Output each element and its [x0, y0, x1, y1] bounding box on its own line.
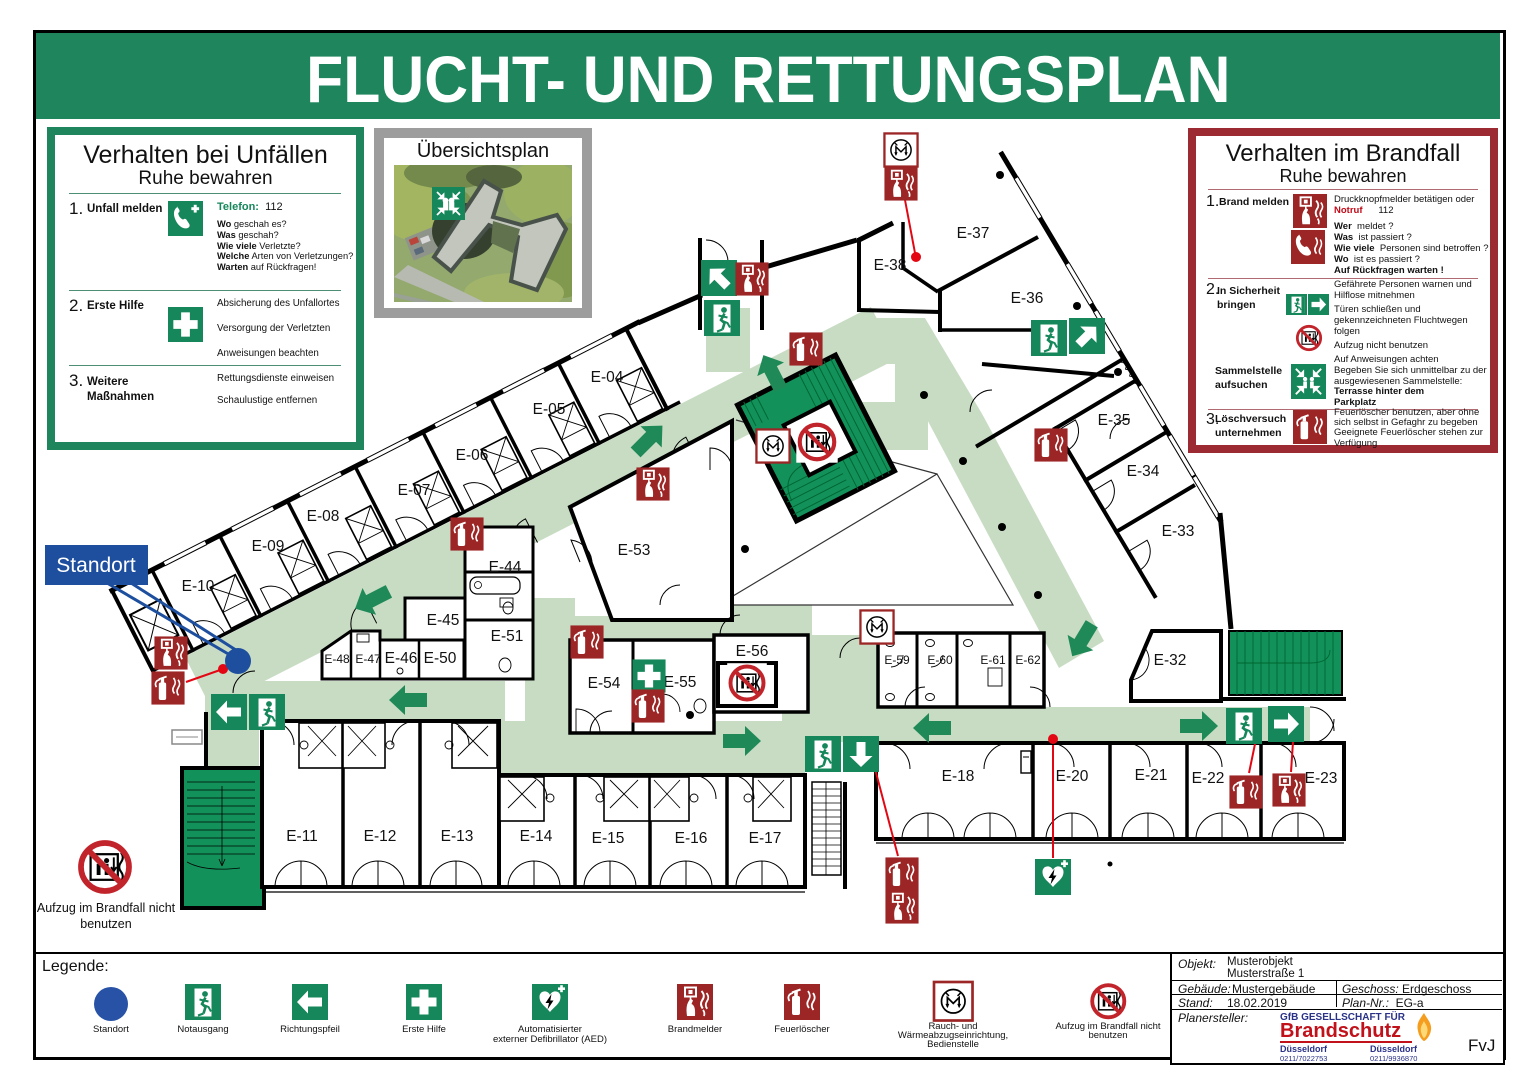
svg-text:Bedienstelle: Bedienstelle [927, 1039, 979, 1050]
svg-text:benutzen: benutzen [1088, 1030, 1127, 1041]
svg-text:Erste Hilfe: Erste Hilfe [402, 1024, 446, 1035]
svg-text:externer Defibrillator (AED): externer Defibrillator (AED) [493, 1034, 607, 1045]
svg-text:Brandmelder: Brandmelder [668, 1024, 722, 1035]
svg-text:Feuerlöscher: Feuerlöscher [774, 1024, 829, 1035]
svg-text:Richtungspfeil: Richtungspfeil [280, 1024, 340, 1035]
svg-text:Notausgang: Notausgang [177, 1024, 228, 1035]
svg-text:Standort: Standort [93, 1024, 129, 1035]
